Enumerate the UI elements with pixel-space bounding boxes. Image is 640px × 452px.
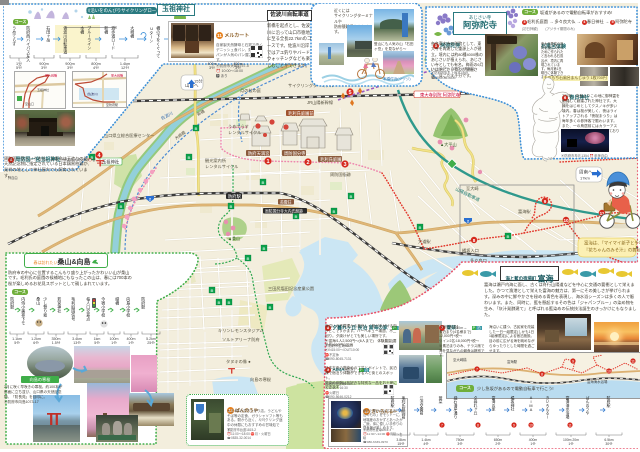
svg-text:4分: 4分 [423, 441, 429, 445]
svg-text:(佐波川): (佐波川) [87, 91, 98, 96]
svg-text:4分: 4分 [93, 65, 99, 69]
svg-text:25分: 25分 [147, 340, 155, 344]
svg-text:至山口: 至山口 [25, 101, 34, 106]
svg-text:5分: 5分 [16, 65, 22, 69]
svg-text:1分: 1分 [111, 340, 117, 344]
svg-text:『花ちゃんのみそ汁』の舞台: 『花ちゃんのみそ汁』の舞台 [584, 247, 640, 254]
svg-text:1分: 1分 [568, 441, 574, 445]
svg-text:3分: 3分 [67, 65, 73, 69]
svg-text:玉祖神社: 玉祖神社 [37, 87, 49, 92]
svg-text:8: 8 [477, 423, 479, 427]
svg-text:9: 9 [572, 359, 574, 363]
svg-text:8: 8 [541, 372, 543, 376]
svg-text:3分: 3分 [209, 65, 215, 69]
svg-text:至防府駅: 至防府駅 [106, 102, 118, 107]
svg-text:富海海水浴場: 富海海水浴場 [587, 379, 608, 384]
svg-text:富海は、『マイマイ新子と千年の魔法』: 富海は、『マイマイ新子と千年の魔法』 [584, 240, 640, 247]
svg-text:7: 7 [476, 367, 478, 371]
svg-text:5分: 5分 [14, 340, 20, 344]
svg-text:2分: 2分 [495, 441, 501, 445]
svg-text:至大崎橋: 至大崎橋 [111, 73, 123, 78]
svg-text:5分: 5分 [94, 340, 100, 344]
svg-text:10: 10 [529, 423, 533, 427]
svg-text:1.5分: 1.5分 [52, 340, 61, 344]
svg-text:7: 7 [441, 423, 443, 427]
svg-text:6分: 6分 [33, 340, 39, 344]
svg-text:3分: 3分 [41, 65, 47, 69]
svg-text:30分: 30分 [605, 441, 613, 445]
svg-text:12分: 12分 [121, 65, 129, 69]
svg-text:15分: 15分 [397, 441, 405, 445]
svg-text:10: 10 [607, 369, 611, 373]
svg-text:13分: 13分 [73, 340, 81, 344]
svg-text:至大崎橋: 至大崎橋 [45, 73, 57, 78]
svg-text:3分: 3分 [457, 441, 463, 445]
svg-text:富海駅: 富海駅 [507, 359, 518, 364]
svg-text:1分: 1分 [530, 441, 536, 445]
svg-text:11: 11 [568, 423, 572, 427]
svg-text:9: 9 [513, 423, 515, 427]
svg-text:11: 11 [631, 359, 635, 363]
svg-text:1分: 1分 [128, 340, 134, 344]
svg-text:至大崎橋: 至大崎橋 [453, 357, 467, 362]
